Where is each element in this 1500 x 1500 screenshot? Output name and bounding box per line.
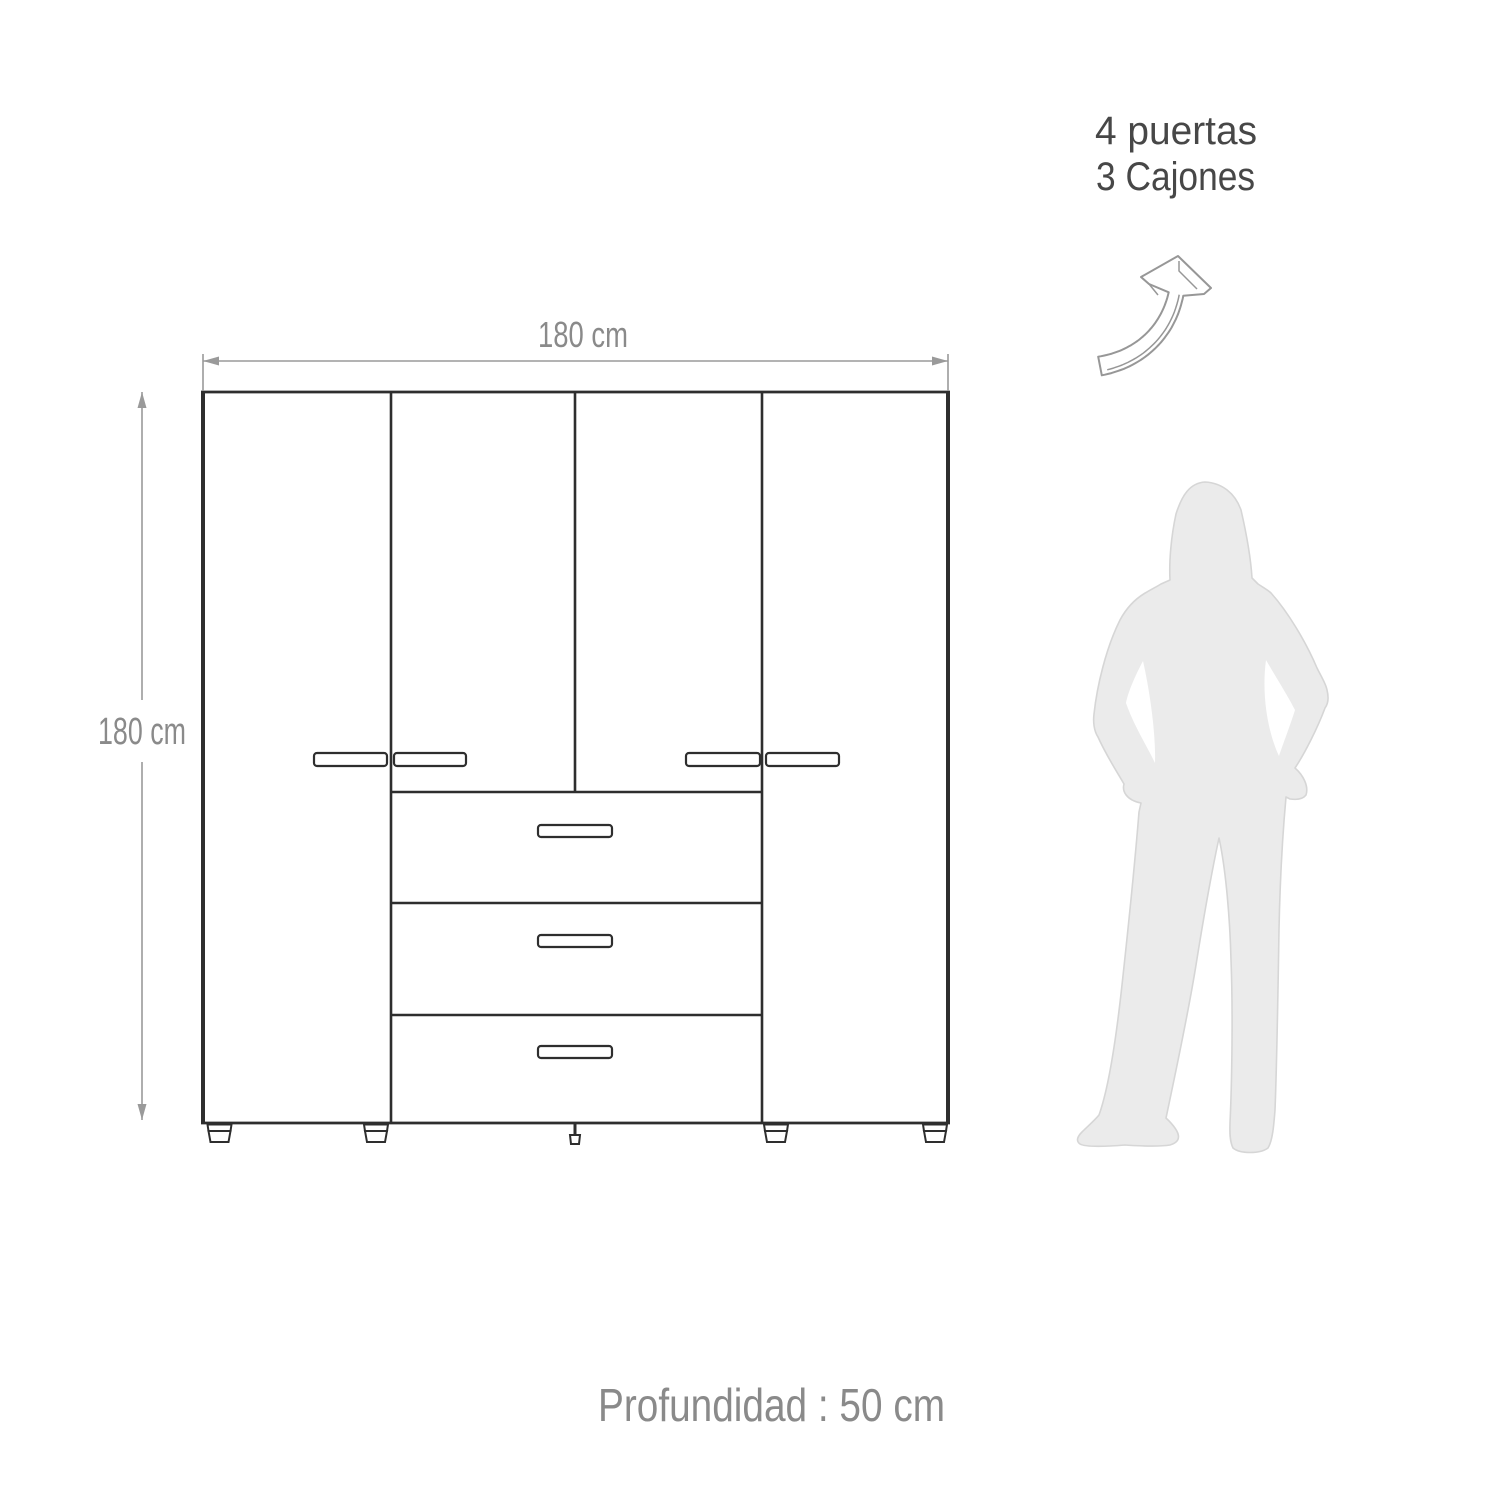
svg-text:3 Cajones: 3 Cajones <box>1096 155 1255 199</box>
svg-text:180 cm: 180 cm <box>538 314 628 355</box>
svg-text:4 puertas: 4 puertas <box>1095 109 1257 153</box>
svg-text:180 cm: 180 cm <box>98 711 186 753</box>
svg-text:Profundidad : 50 cm: Profundidad : 50 cm <box>598 1379 945 1431</box>
